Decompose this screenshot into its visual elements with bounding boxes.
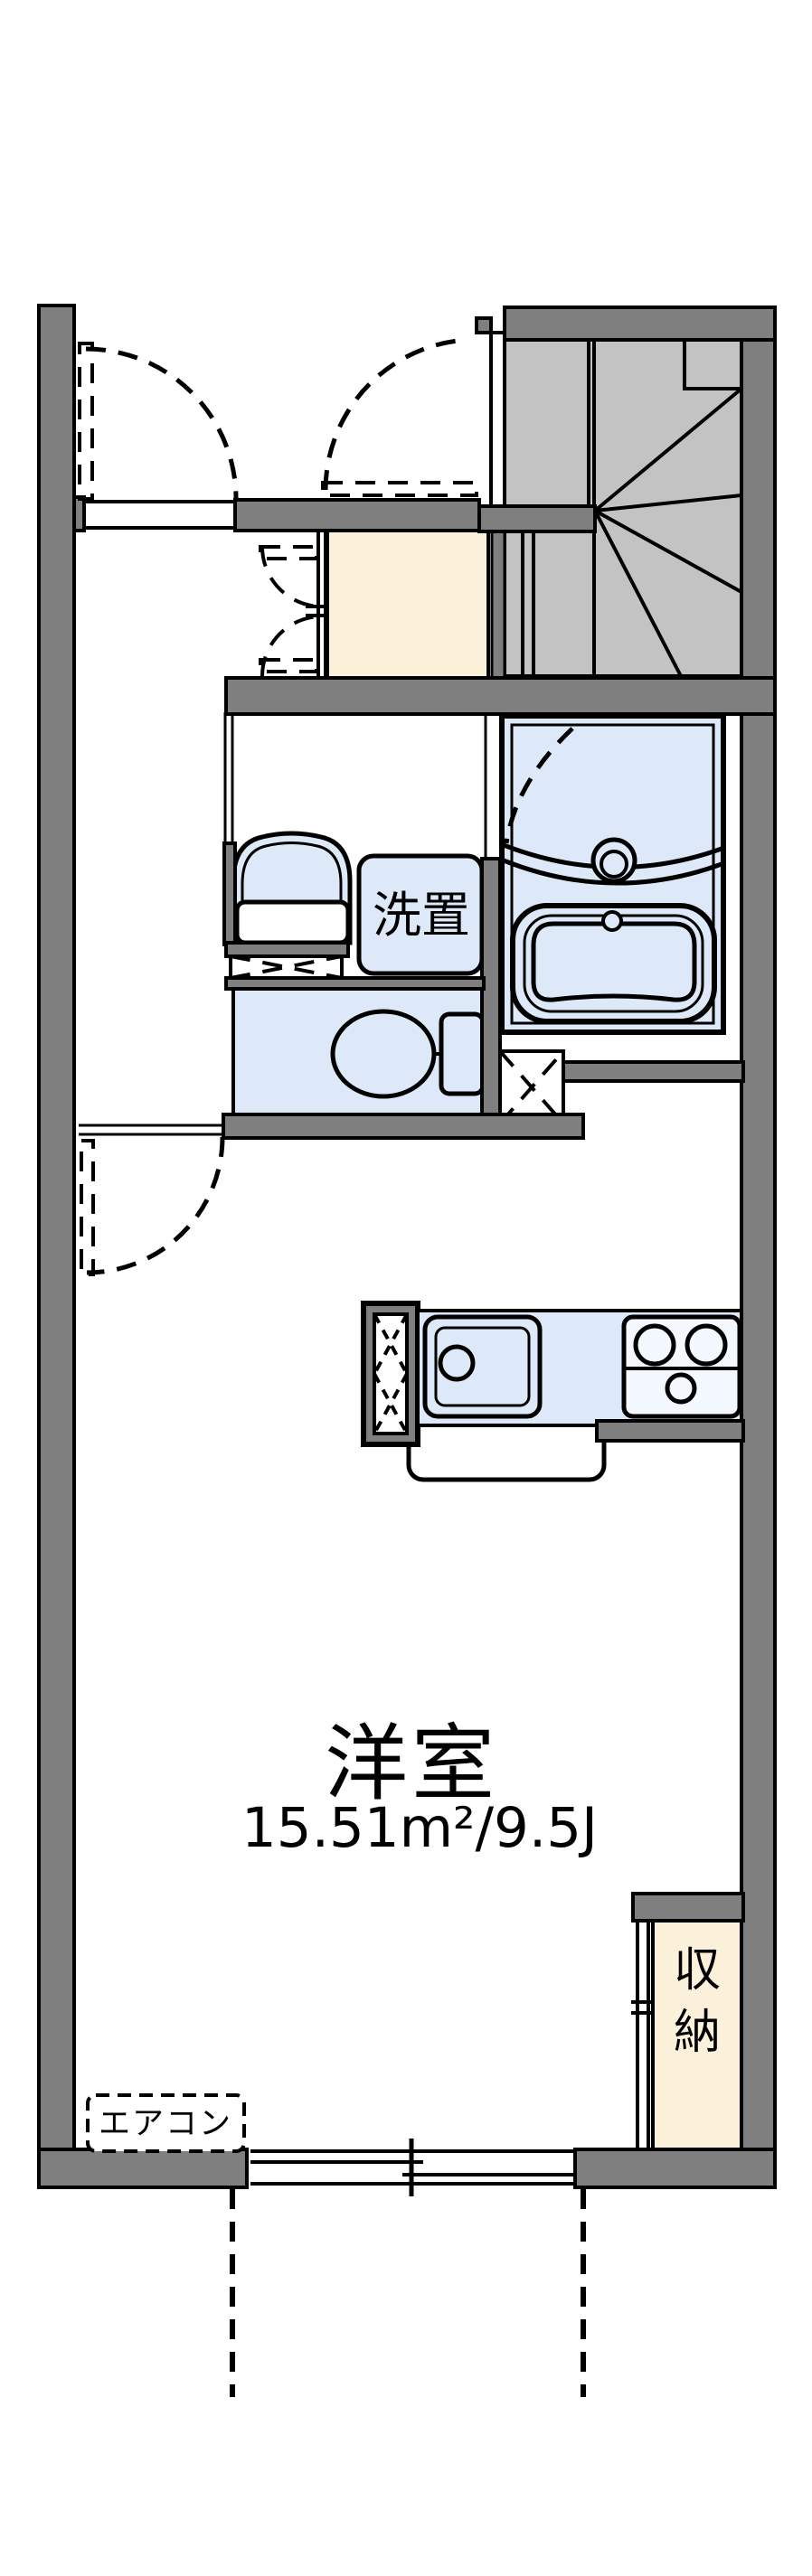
room-door-leaf [81, 1141, 93, 1274]
room-fills [233, 339, 743, 2149]
closet-label-char-bottom: 納 [674, 2006, 721, 2060]
wall-entry-stub-left [74, 497, 84, 531]
hall-double-door-leaf-top [260, 547, 316, 559]
wall-bath-bottom-stub [563, 1062, 743, 1081]
wall-bottom-left [39, 2149, 247, 2187]
toilet-tank [441, 1014, 483, 1094]
stair-doorway [491, 333, 505, 506]
wall-left [39, 306, 74, 2187]
kitchen [364, 1303, 743, 1480]
room-door-swing-arc [87, 1137, 222, 1273]
wall-washroom-right [482, 859, 500, 1123]
main-room-area: 15.51m²/9.5J [241, 1796, 598, 1860]
wall-kitchen-stub [597, 1421, 743, 1441]
stove-burner-left [636, 1326, 674, 1364]
stair-door-leaf [323, 483, 477, 495]
stove-burner-right [687, 1326, 725, 1364]
front-door-leaf [80, 343, 92, 499]
washer-space-label: 洗置 [373, 887, 470, 944]
vanity-basin [237, 902, 348, 943]
wall-top-right [505, 307, 775, 340]
hall-double-door-arc-bottom [262, 616, 322, 676]
wall-closet-top-stub [633, 1894, 743, 1921]
bathtub-drain [603, 912, 621, 930]
bath-faucet-inner [601, 851, 627, 877]
wall-entry-threshold [235, 500, 479, 531]
wall-bottom-right [575, 2149, 775, 2187]
hall-double-door-arc-top [262, 547, 322, 606]
stair-lower-left-wall [492, 531, 505, 678]
wall-sanitary-bottom [223, 1114, 583, 1138]
stair-door-swing-arc [326, 340, 467, 490]
wall-right [741, 307, 775, 2187]
bathroom [486, 716, 723, 1032]
wall-under-vanity [226, 943, 348, 956]
kitchen-faucet [440, 1347, 473, 1379]
stove-burner-small [667, 1375, 694, 1402]
entrance-hall-floor [327, 531, 488, 678]
toilet [333, 1011, 483, 1096]
front-door-swing-arc [86, 349, 236, 499]
wall-vanity-left [224, 843, 235, 945]
air-conditioner: エアコン [88, 2095, 244, 2151]
wall-stair-foot [479, 506, 595, 531]
wall-stub-above-stair-door [477, 318, 491, 333]
kitchen-side-panel [374, 1314, 407, 1434]
wall-under-hatch [226, 978, 484, 989]
aircon-label: エアコン [99, 2106, 232, 2142]
wall-hall-bottom [226, 678, 775, 714]
closet-label-char-top: 収 [674, 1943, 721, 1998]
hall-double-door-leaf-bottom [260, 660, 316, 672]
floor-plan: エアコン 洗置 洋室 15.51m²/9.5J 収 納 [0, 0, 812, 2576]
toilet-bowl [333, 1011, 434, 1096]
